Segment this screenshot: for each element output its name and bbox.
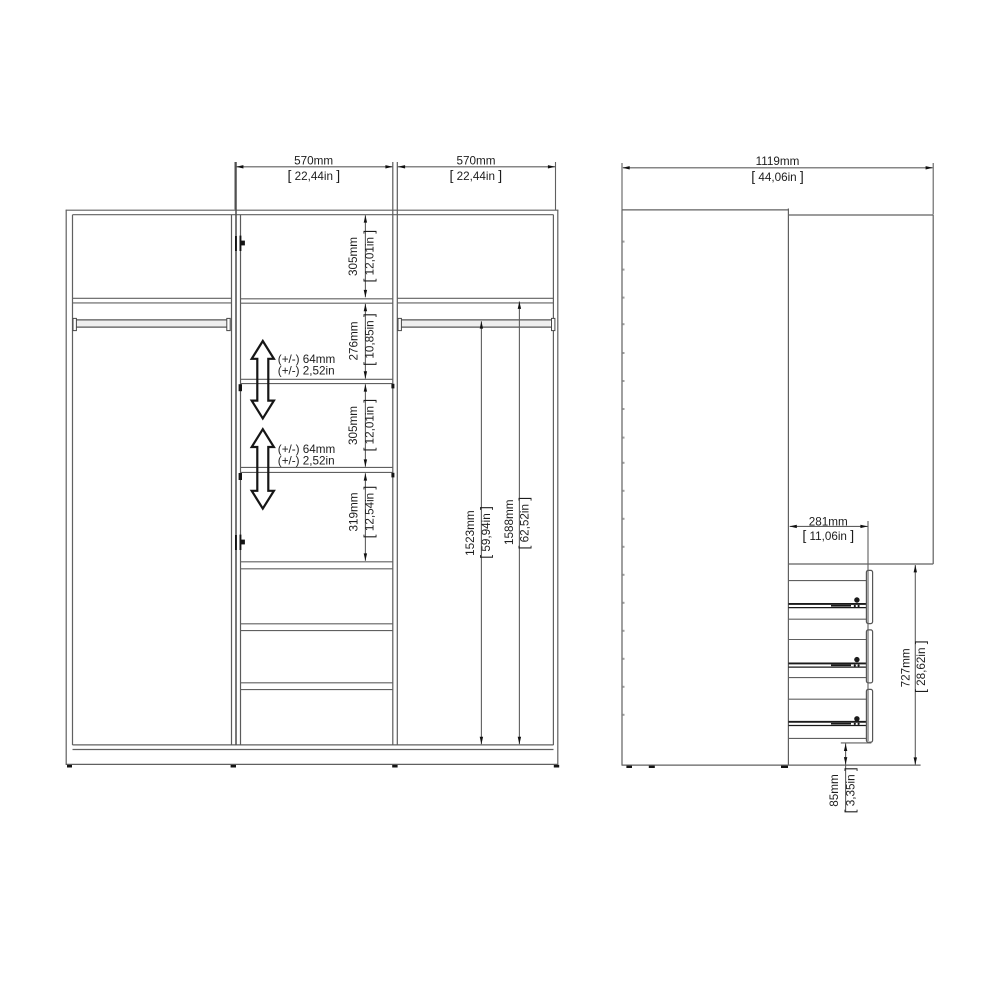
svg-text:[ 10,85in ]: [ 10,85in ] xyxy=(360,313,376,366)
svg-text:1523mm: 1523mm xyxy=(464,510,477,555)
svg-text:305mm: 305mm xyxy=(347,406,360,445)
svg-text:[ 28,62in ]: [ 28,62in ] xyxy=(912,640,928,693)
svg-text:305mm: 305mm xyxy=(347,237,360,276)
svg-text:[ 11,06in ]: [ 11,06in ] xyxy=(802,527,854,543)
svg-text:570mm: 570mm xyxy=(294,155,333,168)
svg-text:85mm: 85mm xyxy=(828,774,841,806)
svg-text:[ 12,01in ]: [ 12,01in ] xyxy=(360,230,376,283)
svg-text:319mm: 319mm xyxy=(347,493,360,532)
svg-text:[ 22,44in ]: [ 22,44in ] xyxy=(287,167,340,183)
svg-text:727mm: 727mm xyxy=(899,648,912,687)
svg-text:1588mm: 1588mm xyxy=(503,500,516,545)
svg-text:[ 59,94in ]: [ 59,94in ] xyxy=(477,506,493,559)
svg-text:[ 12,54in ]: [ 12,54in ] xyxy=(360,486,376,539)
svg-text:[ 22,44in ]: [ 22,44in ] xyxy=(449,167,502,183)
svg-text:276mm: 276mm xyxy=(347,322,360,361)
svg-text:1119mm: 1119mm xyxy=(756,155,800,168)
svg-text:570mm: 570mm xyxy=(457,155,496,168)
svg-text:(+/-) 2,52in: (+/-) 2,52in xyxy=(278,364,335,377)
svg-text:[ 62,52in ]: [ 62,52in ] xyxy=(515,497,531,550)
svg-text:281mm: 281mm xyxy=(809,516,848,529)
svg-text:[ 12,01in ]: [ 12,01in ] xyxy=(360,399,376,452)
svg-text:[ 3,35in ]: [ 3,35in ] xyxy=(841,767,857,813)
svg-text:(+/-) 2,52in: (+/-) 2,52in xyxy=(278,455,335,468)
svg-text:[ 44,06in ]: [ 44,06in ] xyxy=(751,168,804,184)
